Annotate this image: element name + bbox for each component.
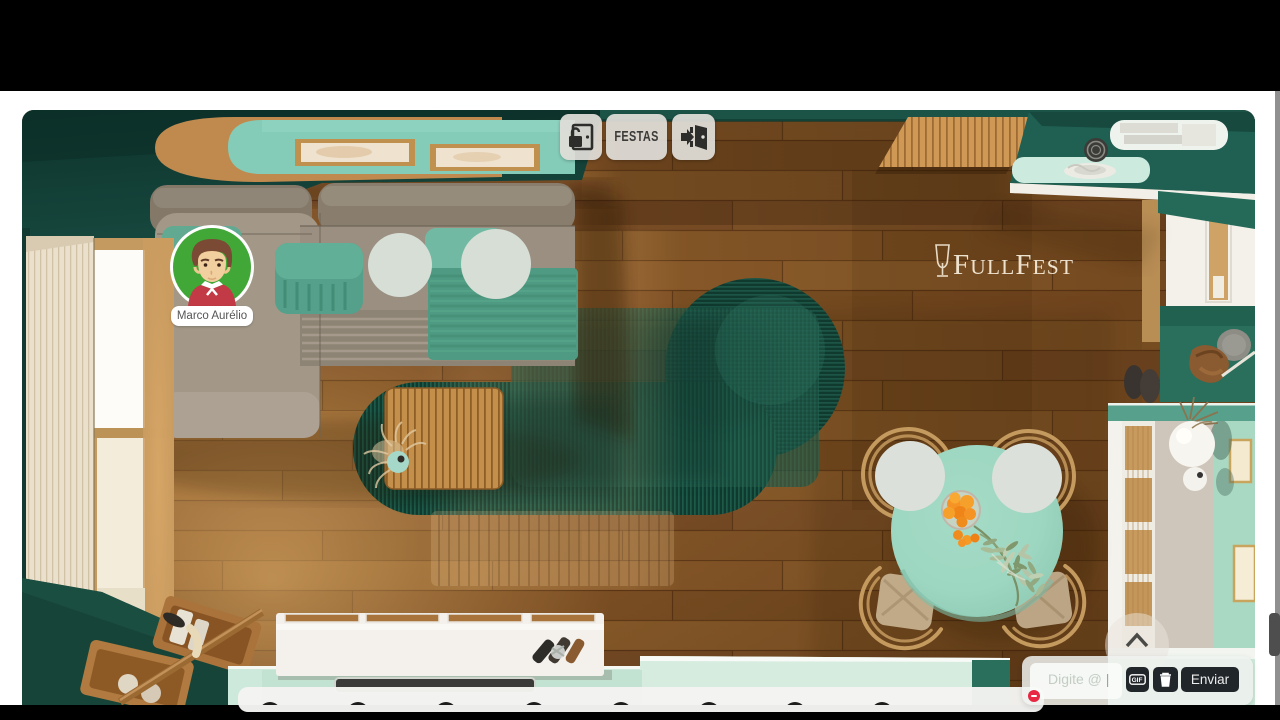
- svg-text:GIF: GIF: [1132, 677, 1143, 684]
